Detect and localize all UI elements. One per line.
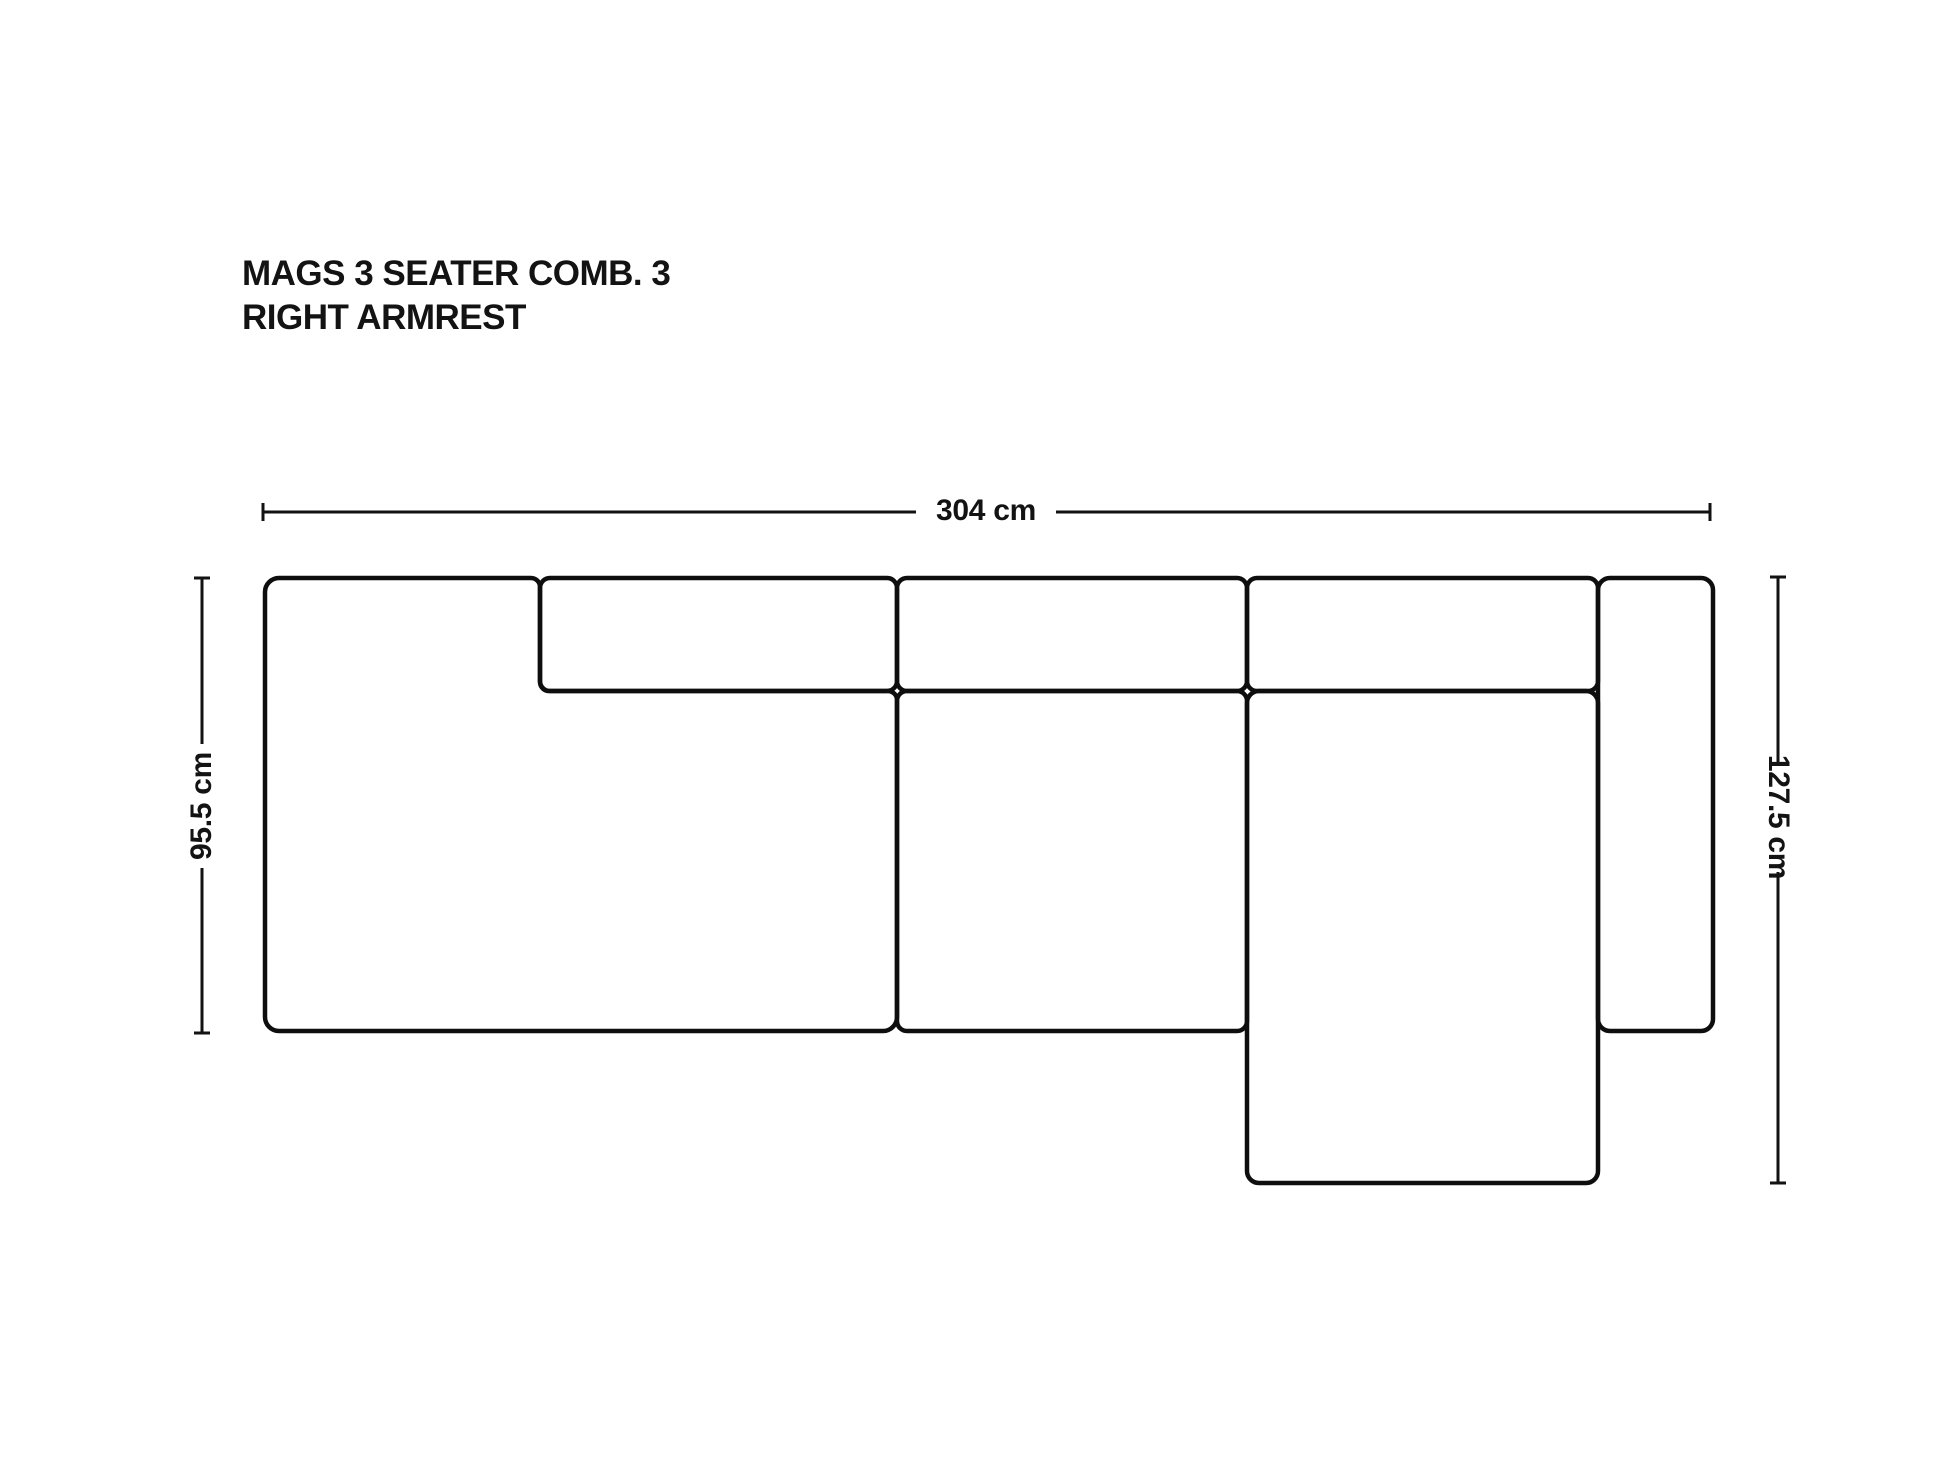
- product-dimension-diagram: MAGS 3 SEATER COMB. 3 RIGHT ARMREST 304 …: [0, 0, 1946, 1464]
- right-armrest-outline: [1598, 578, 1713, 1031]
- right-depth-dimension-label: 127.5 cm: [1761, 727, 1795, 907]
- sofa-outline: [265, 578, 1713, 1183]
- right-backrest-cushion-outline: [1247, 578, 1598, 691]
- sofa-top-view-drawing: [0, 0, 1946, 1464]
- middle-backrest-cushion-outline: [897, 578, 1247, 691]
- chaise-outline: [1247, 691, 1598, 1183]
- width-dimension-label: 304 cm: [916, 493, 1056, 529]
- middle-seat-outline: [897, 691, 1247, 1031]
- left-depth-dimension-label: 95.5 cm: [185, 726, 219, 886]
- left-module-outline: [265, 578, 897, 1031]
- left-backrest-cushion-outline: [540, 578, 897, 691]
